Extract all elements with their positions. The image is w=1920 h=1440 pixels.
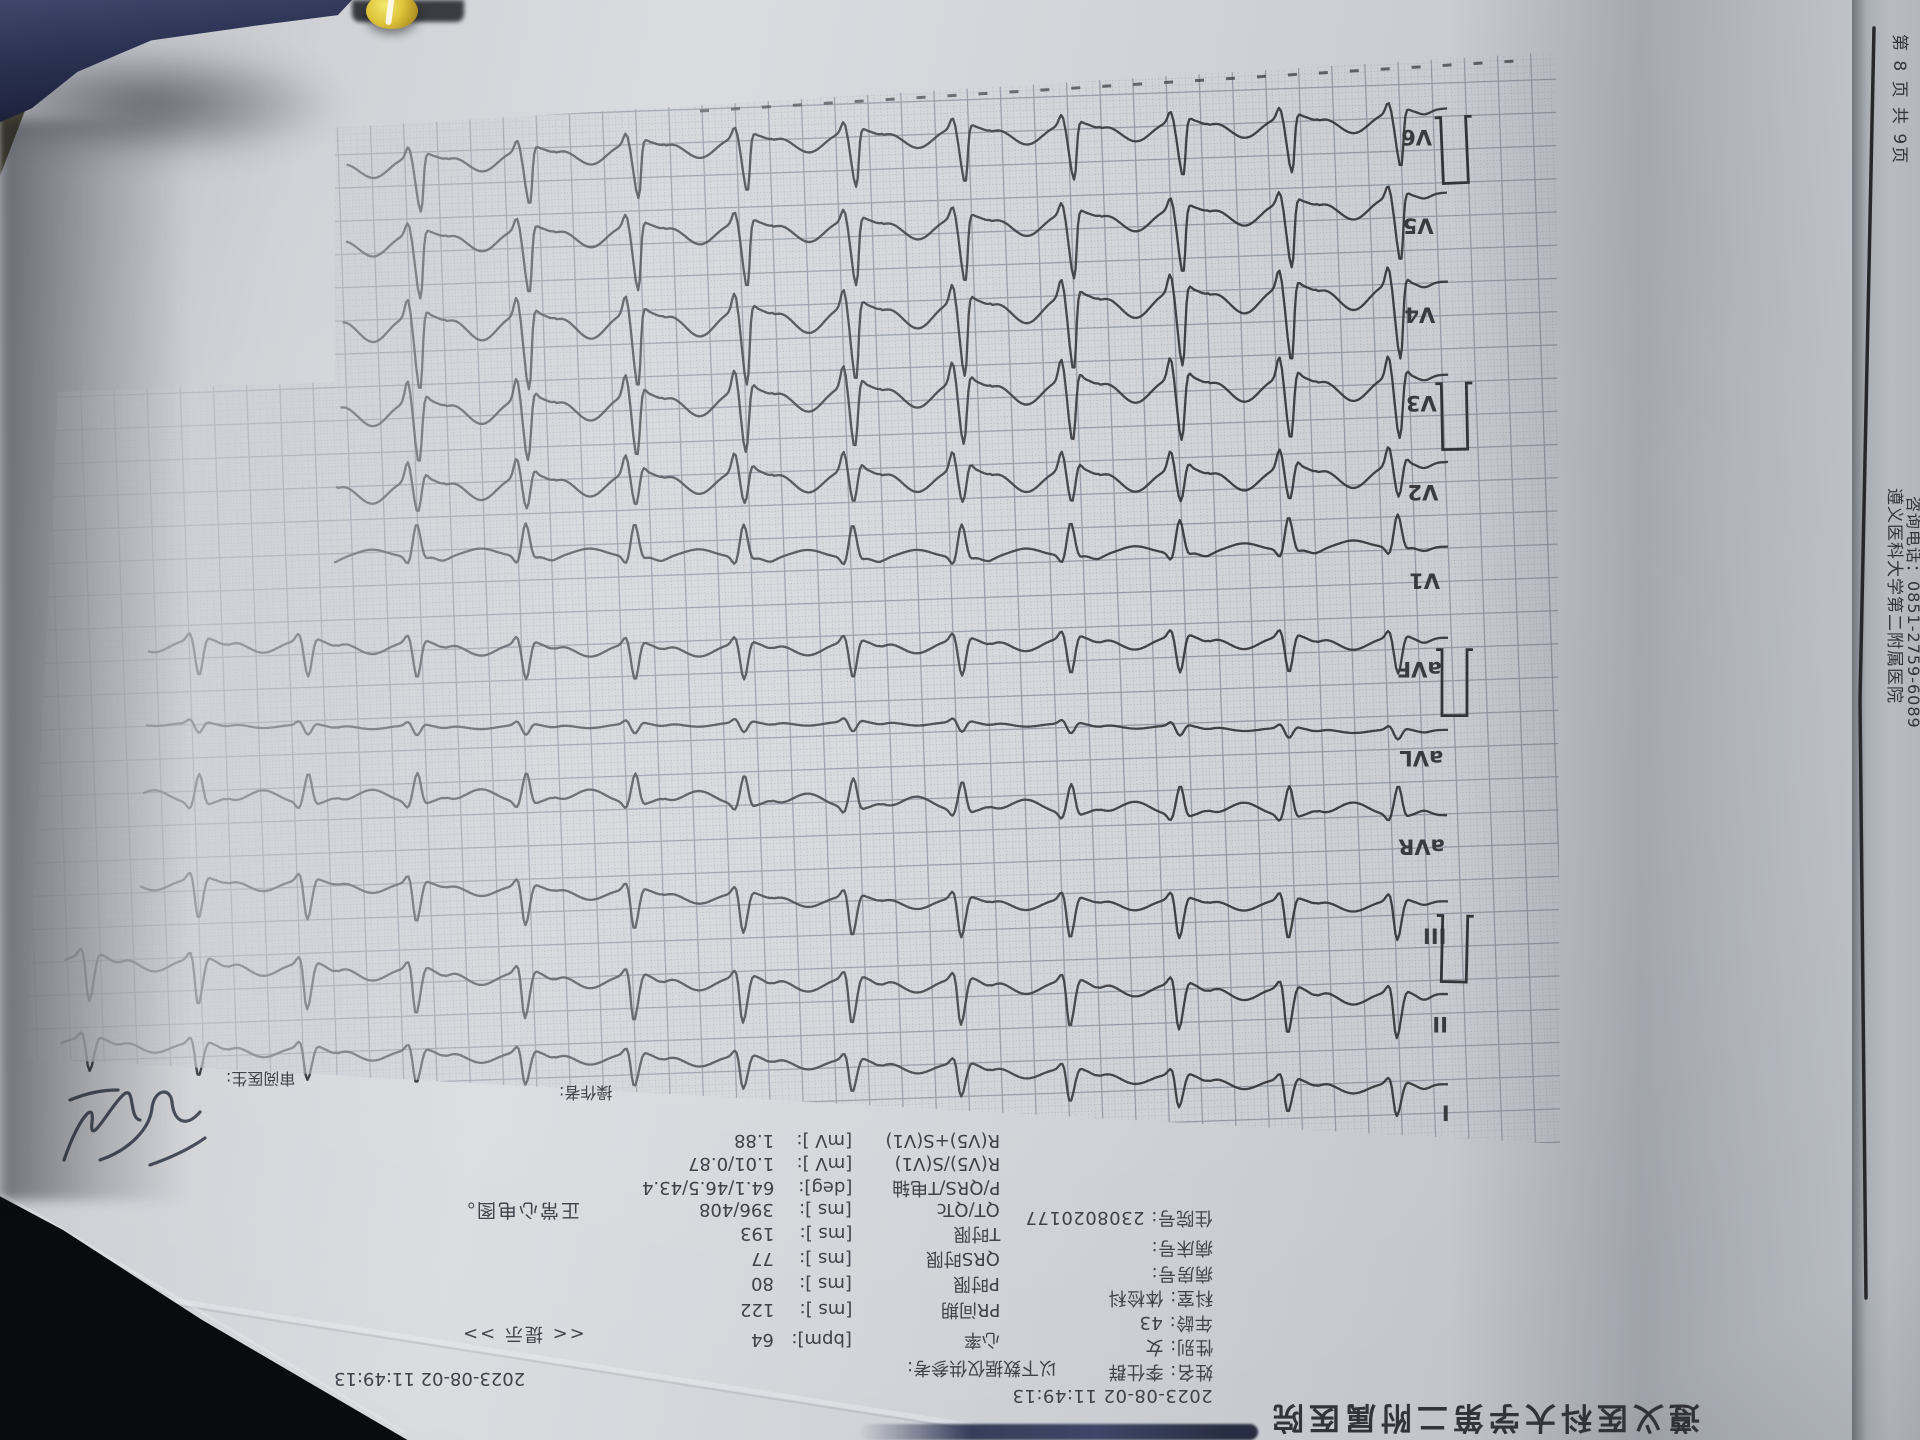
diagnosis-conclusion: 正常心电图。 (454, 1198, 580, 1225)
navy-edge-bottom (858, 1424, 1258, 1440)
photo-of-ecg-report: 第 8 页 共 9页 遵义医科大学第二附属医院 咨询电话：0851-2759-6… (0, 0, 1920, 1440)
reviewer-label: 审阅医生: (226, 1068, 295, 1092)
patient-line: 姓名: 李仕群 (1108, 1360, 1213, 1386)
lead-label-V6: V6 (1401, 125, 1432, 149)
lead-label-aVL: aVL (1399, 746, 1443, 770)
hint-heading: << 提示 >> (461, 1322, 585, 1348)
patient-line: 病床号: (1151, 1236, 1213, 1262)
patient-line: 性别: 女 (1145, 1335, 1213, 1361)
patient-line: 2023-08-02 11:49:13 (1012, 1385, 1213, 1406)
measurement-line: R(V5)+S(V1)[mV ]:1.88 (734, 1130, 1000, 1151)
measurement-line: R(V5)/S(V1)[mV ]:1.01/0.87 (688, 1153, 1000, 1174)
lead-label-II: II (1432, 1012, 1448, 1036)
lead-label-V5: V5 (1403, 214, 1434, 238)
lead-label-V3: V3 (1406, 391, 1437, 415)
report-title-hospital: 遵义医科大学第二附属医院 (1268, 1398, 1700, 1440)
lead-label-I: I (1442, 1101, 1450, 1125)
lead-label-aVF: aVF (1397, 657, 1442, 681)
reference-note: 以下数据仅供参考: (907, 1356, 1057, 1382)
lead-label-V2: V2 (1408, 480, 1439, 504)
operator-label: 操作者: (559, 1082, 612, 1106)
measurement-line: P/QRS/T电轴[deg]:64.1/46.5/43.4 (642, 1176, 1000, 1202)
patient-line: 病房号: (1151, 1262, 1213, 1288)
measurement-line: PR间期[ms ]:122 (740, 1298, 1000, 1324)
lead-label-V4: V4 (1404, 302, 1435, 326)
measurement-line: T时限[ms ]:193 (740, 1222, 1000, 1248)
sheet2-ruled-line (1860, 28, 1874, 1298)
patient-line: 科室: 体检科 (1108, 1286, 1213, 1312)
lead-label-V1: V1 (1409, 569, 1440, 593)
measurement-line: 心率[bpm]:64 (751, 1328, 1000, 1354)
patient-line: 住院号: 2308020177 (1025, 1206, 1213, 1232)
measurement-line: QRS时限[ms ]:77 (751, 1247, 1000, 1273)
handwritten-signature (64, 1090, 205, 1165)
measurement-line: P时限[ms ]:80 (751, 1272, 1000, 1298)
patient-line: 年龄: 43 (1139, 1311, 1213, 1337)
acquisition-datetime: 2023-08-02 11:49:13 (334, 1368, 525, 1389)
measurement-line: QT/QTc[ms ]:396/408 (699, 1199, 1000, 1220)
lead-label-aVR: aVR (1398, 835, 1445, 859)
